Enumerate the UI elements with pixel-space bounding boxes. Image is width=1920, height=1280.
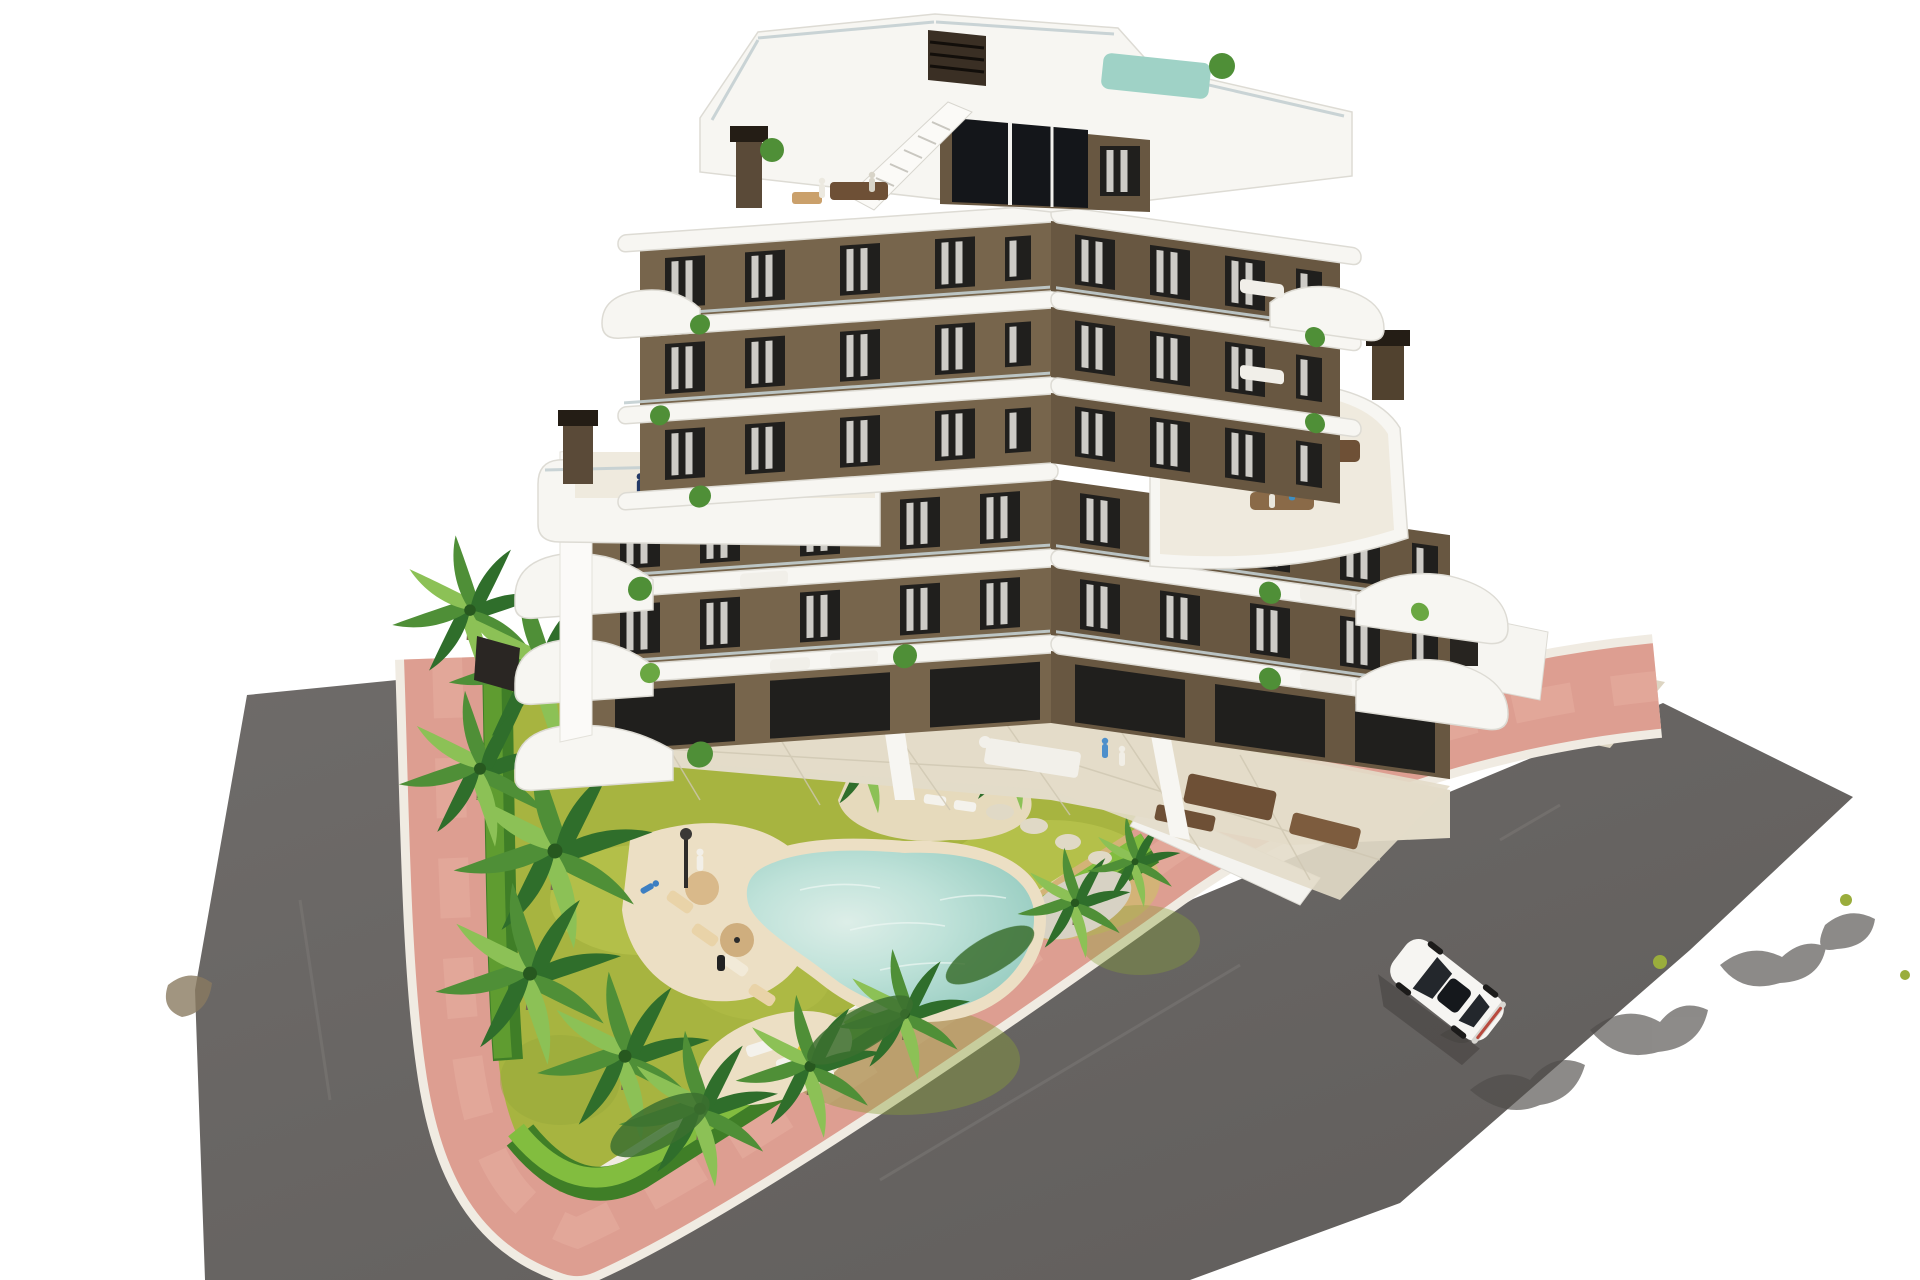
person-by-pool bbox=[696, 849, 703, 871]
penthouse-glass-wall bbox=[952, 118, 1088, 208]
roof-plant bbox=[1209, 53, 1235, 79]
chimney-left bbox=[563, 418, 593, 484]
chimney-penthouse bbox=[736, 138, 762, 208]
chimney-right bbox=[1372, 338, 1404, 400]
scene-canvas bbox=[0, 0, 1920, 1280]
penthouse-roof bbox=[700, 14, 1352, 212]
parasol-stand bbox=[717, 955, 725, 971]
tower-right-wing bbox=[1051, 205, 1384, 510]
parasol bbox=[685, 871, 719, 905]
roof-louver-box bbox=[928, 30, 986, 86]
aerial-render-scene bbox=[0, 0, 1920, 1280]
tower-left-wing bbox=[602, 205, 1058, 515]
upper-tower bbox=[602, 205, 1384, 515]
roof-plant bbox=[760, 138, 784, 162]
